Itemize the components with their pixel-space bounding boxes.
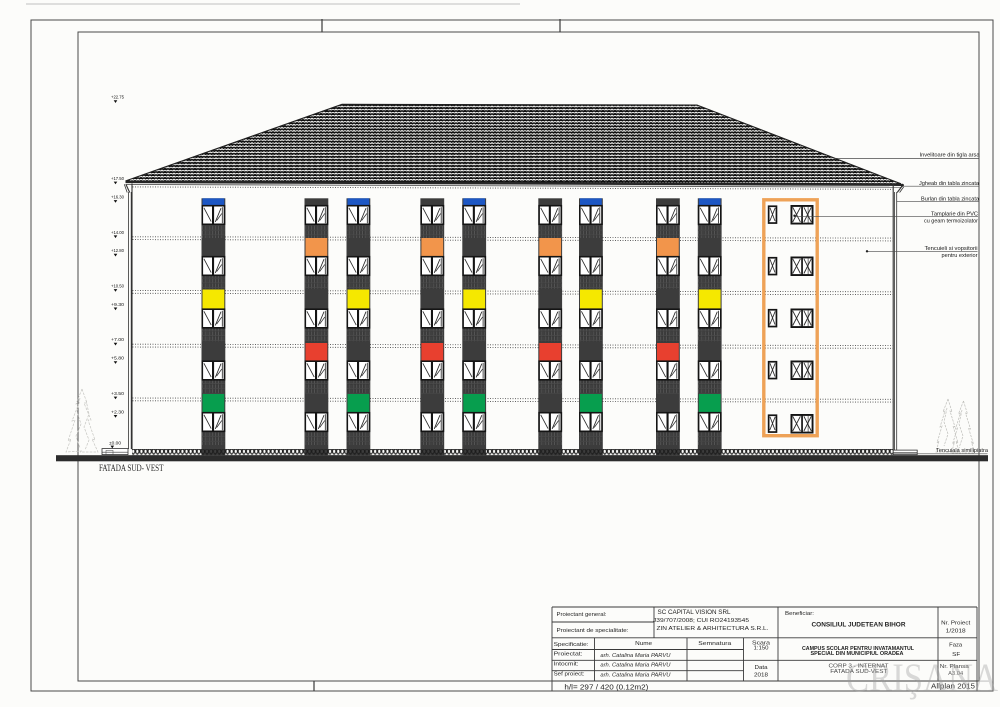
svg-text:Nr. Proiect: Nr. Proiect [941, 620, 971, 626]
svg-text:pentru exterior: pentru exterior [942, 253, 978, 259]
svg-text:CRIŞANA: CRIŞANA [846, 655, 998, 700]
svg-text:1:150: 1:150 [754, 646, 769, 652]
svg-text:SC CAPITAL VISION SRL: SC CAPITAL VISION SRL [658, 610, 732, 616]
svg-text:+14.00: +14.00 [111, 230, 124, 236]
svg-text:arh. Catalina Maria PARVU: arh. Catalina Maria PARVU [600, 663, 670, 669]
svg-text:CONSILIUL JUDETEAN BIHOR: CONSILIUL JUDETEAN BIHOR [812, 621, 907, 628]
svg-text:+7.00: +7.00 [111, 337, 124, 343]
svg-text:+17.50: +17.50 [111, 176, 124, 182]
svg-text:+3.50: +3.50 [111, 391, 124, 397]
svg-text:+5.80: +5.80 [111, 356, 124, 362]
svg-text:arh. Catalina Maria PARVU: arh. Catalina Maria PARVU [600, 653, 670, 659]
svg-text:2018: 2018 [754, 673, 768, 679]
svg-text:Specificatie:: Specificatie: [554, 642, 589, 648]
svg-text:Proiectat:: Proiectat: [554, 652, 583, 658]
svg-text:Nume: Nume [635, 641, 652, 647]
svg-text:Intocmit:: Intocmit: [554, 661, 579, 667]
svg-text:arh. Catalina Maria PARVU: arh. Catalina Maria PARVU [600, 673, 670, 679]
svg-text:+2.30: +2.30 [111, 409, 124, 415]
svg-text:Faza: Faza [949, 642, 963, 648]
svg-text:Proiectant de specialitate:: Proiectant de specialitate: [557, 628, 629, 634]
svg-text:Proiectant general:: Proiectant general: [557, 612, 607, 618]
svg-text:Invelitoare din tigla arsa: Invelitoare din tigla arsa [920, 153, 980, 159]
svg-text:cu geam termoizolator: cu geam termoizolator [924, 218, 978, 224]
svg-text:J39/707/2008; CUI RO24193545: J39/707/2008; CUI RO24193545 [653, 618, 749, 624]
svg-text:+22.75: +22.75 [111, 95, 124, 101]
svg-text:+16.30: +16.30 [111, 195, 124, 201]
svg-text:Semnatura: Semnatura [698, 641, 731, 647]
svg-text:ZIN ATELIER & ARHITECTURA S.R.: ZIN ATELIER & ARHITECTURA S.R.L. [657, 626, 769, 632]
svg-text:+12.80: +12.80 [111, 248, 124, 254]
svg-text:h/l= 297 / 420 (0.12m2): h/l= 297 / 420 (0.12m2) [564, 685, 648, 692]
svg-text:Tencuieli si vopsitorii: Tencuieli si vopsitorii [925, 246, 978, 252]
svg-text:+9.30: +9.30 [111, 302, 124, 308]
svg-text:Beneficiar:: Beneficiar: [785, 611, 814, 617]
svg-text:Data: Data [755, 665, 768, 671]
svg-text:Tencuiala similipiatra: Tencuiala similipiatra [936, 448, 988, 454]
svg-text:FATADA SUD- VEST: FATADA SUD- VEST [99, 463, 164, 473]
svg-text:+10.50: +10.50 [111, 284, 124, 290]
svg-text:1/2018: 1/2018 [946, 628, 966, 634]
svg-text:Sef proiect:: Sef proiect: [554, 672, 585, 678]
